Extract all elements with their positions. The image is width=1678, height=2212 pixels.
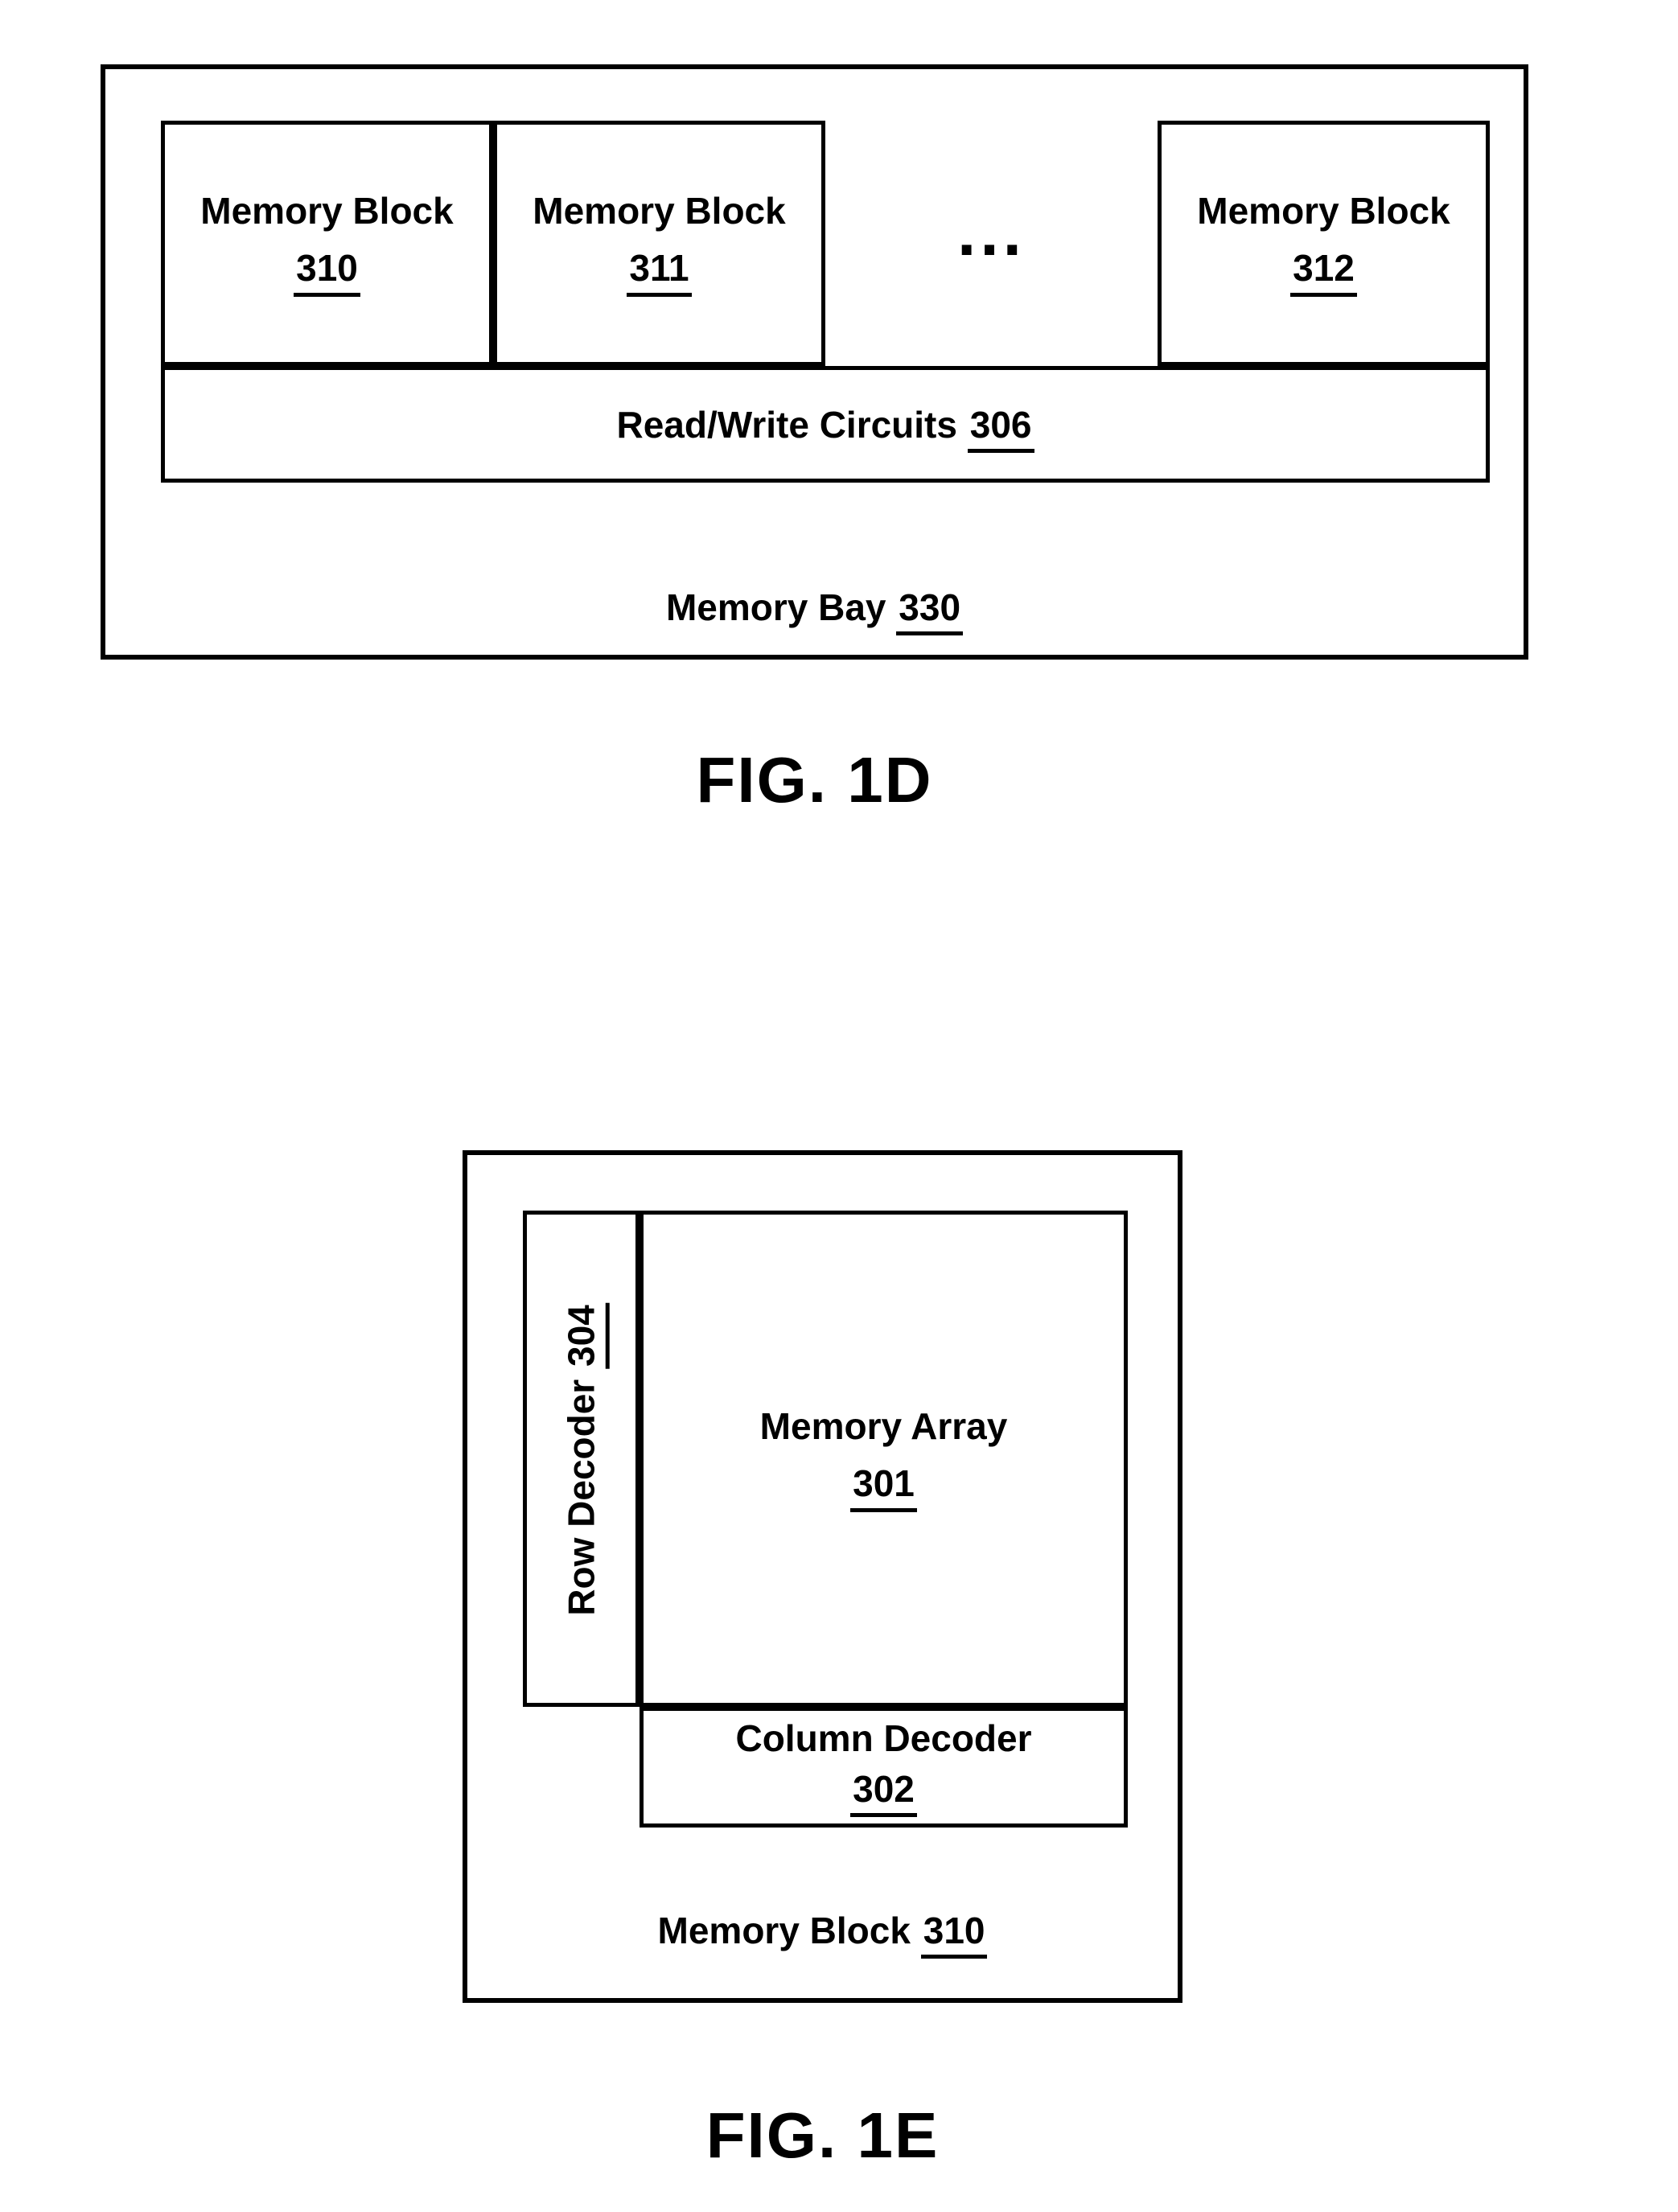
memory-block-311-label: Memory Block 311 xyxy=(533,190,785,297)
memory-block-310-label: Memory Block 310 xyxy=(200,190,453,297)
fig-1d-caption: FIG. 1D xyxy=(101,736,1528,824)
memory-block-310-box: Memory Block 310 xyxy=(161,121,493,366)
memory-block-ref: 310 xyxy=(921,1910,988,1959)
memory-block-310-text: Memory Block xyxy=(200,190,453,232)
read-write-circuits-box: Read/Write Circuits 306 xyxy=(161,366,1490,483)
memory-array-text: Memory Array xyxy=(760,1405,1008,1448)
read-write-circuits-ref: 306 xyxy=(968,404,1034,453)
column-decoder-text: Column Decoder xyxy=(735,1717,1031,1760)
ellipsis-cell: ... xyxy=(825,121,1158,366)
memory-block-text: Memory Block xyxy=(658,1910,911,1951)
memory-bay-label: Memory Bay 330 xyxy=(101,563,1528,652)
memory-block-312-text: Memory Block xyxy=(1197,190,1450,232)
memory-block-311-ref: 311 xyxy=(627,247,691,297)
read-write-circuits-label: Read/Write Circuits 306 xyxy=(616,403,1034,446)
row-decoder-text: Row Decoder xyxy=(561,1379,603,1615)
row-decoder-ref: 304 xyxy=(561,1302,610,1369)
memory-block-311-box: Memory Block 311 xyxy=(493,121,825,366)
memory-array-ref: 301 xyxy=(850,1462,917,1512)
row-decoder-label: Row Decoder 304 xyxy=(560,1302,603,1615)
memory-block-312-box: Memory Block 312 xyxy=(1158,121,1490,366)
memory-block-311-text: Memory Block xyxy=(533,190,785,232)
column-decoder-ref: 302 xyxy=(850,1768,917,1818)
memory-block-310-ref: 310 xyxy=(294,247,360,297)
memory-array-box: Memory Array 301 xyxy=(640,1211,1128,1707)
column-decoder-label: Column Decoder 302 xyxy=(735,1717,1031,1818)
fig-1e-caption: FIG. 1E xyxy=(463,2091,1182,2180)
column-decoder-box: Column Decoder 302 xyxy=(640,1707,1128,1828)
memory-array-label: Memory Array 301 xyxy=(760,1405,1008,1512)
memory-bay-text: Memory Bay xyxy=(666,586,886,628)
memory-block-label-text-wrap: Memory Block 310 xyxy=(658,1909,988,1952)
memory-block-312-ref: 312 xyxy=(1290,247,1357,297)
read-write-circuits-text: Read/Write Circuits xyxy=(616,404,956,446)
memory-block-312-label: Memory Block 312 xyxy=(1197,190,1450,297)
memory-bay-ref: 330 xyxy=(896,586,963,635)
memory-block-label: Memory Block 310 xyxy=(463,1886,1182,1975)
memory-bay-label-text-wrap: Memory Bay 330 xyxy=(666,586,963,629)
patent-figure-sheet: Memory Block 310 Memory Block 311 ... Me… xyxy=(0,0,1678,2212)
row-decoder-label-wrap: Row Decoder 304 xyxy=(523,1211,640,1707)
